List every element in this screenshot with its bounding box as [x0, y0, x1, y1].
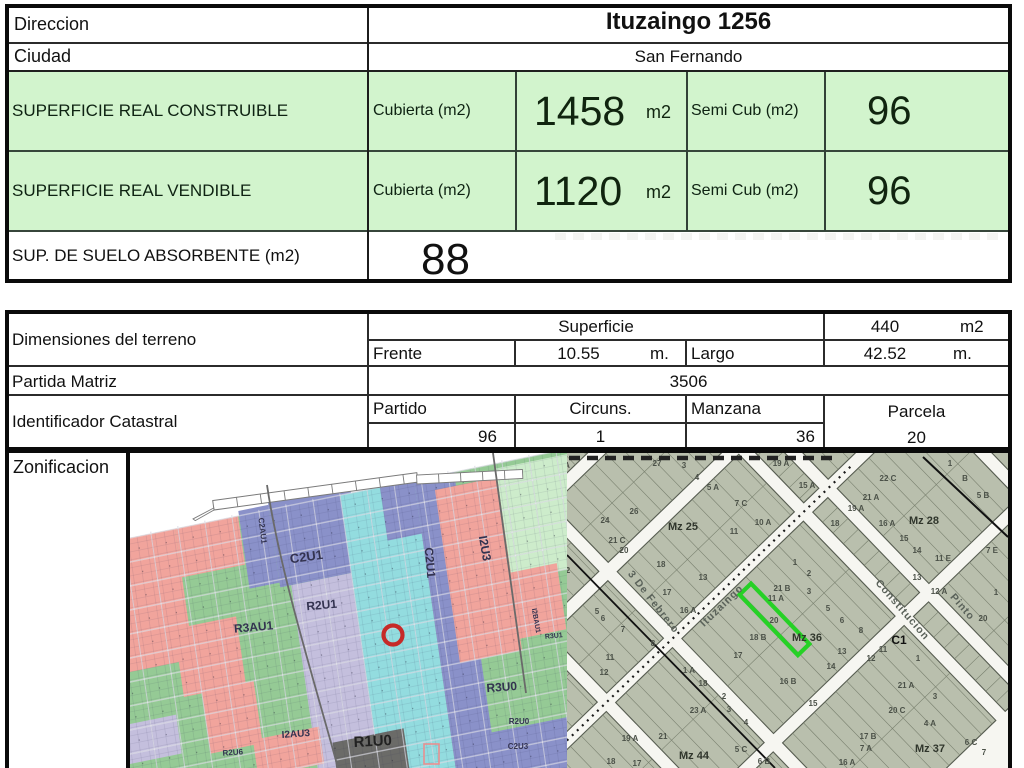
- svg-text:4: 4: [744, 718, 749, 727]
- svg-text:21 A: 21 A: [898, 681, 915, 690]
- svg-text:1: 1: [948, 459, 953, 468]
- svg-text:A: A: [567, 461, 570, 470]
- svg-text:6 C: 6 C: [965, 738, 978, 747]
- svg-text:2: 2: [722, 692, 727, 701]
- svg-text:20: 20: [770, 616, 779, 625]
- svg-text:Mz 25: Mz 25: [668, 521, 698, 533]
- svg-text:18: 18: [831, 519, 840, 528]
- svg-text:R3U0: R3U0: [486, 679, 518, 695]
- svg-text:21: 21: [659, 732, 668, 741]
- svg-text:20 C: 20 C: [889, 706, 906, 715]
- svg-text:7 A: 7 A: [860, 744, 872, 753]
- svg-text:Mz 37: Mz 37: [915, 743, 945, 755]
- svg-text:16 B: 16 B: [780, 677, 797, 686]
- svg-text:R2U6: R2U6: [222, 747, 244, 757]
- svg-text:6: 6: [840, 616, 845, 625]
- svg-text:12: 12: [867, 654, 876, 663]
- svg-text:19 A: 19 A: [773, 459, 790, 468]
- svg-text:10 A: 10 A: [755, 518, 772, 527]
- svg-text:13: 13: [913, 573, 922, 582]
- svg-text:15 A: 15 A: [799, 481, 816, 490]
- svg-text:Mz 28: Mz 28: [909, 515, 939, 527]
- svg-text:15: 15: [809, 699, 818, 708]
- svg-text:3: 3: [807, 587, 812, 596]
- svg-text:19 A: 19 A: [622, 734, 639, 743]
- svg-text:I2AU3: I2AU3: [281, 728, 310, 741]
- svg-text:18 B: 18 B: [750, 633, 767, 642]
- svg-text:17 B: 17 B: [860, 732, 877, 741]
- svg-text:C1: C1: [891, 633, 907, 647]
- svg-text:13: 13: [838, 647, 847, 656]
- svg-text:16 A: 16 A: [839, 758, 856, 767]
- svg-text:18: 18: [699, 679, 708, 688]
- svg-text:26: 26: [630, 507, 639, 516]
- svg-text:7: 7: [621, 625, 626, 634]
- svg-text:23 A: 23 A: [690, 706, 707, 715]
- svg-text:5: 5: [826, 604, 831, 613]
- svg-text:11: 11: [879, 645, 888, 654]
- svg-text:11: 11: [606, 653, 615, 662]
- svg-text:13: 13: [699, 573, 708, 582]
- svg-text:17: 17: [663, 588, 672, 597]
- svg-text:5 A: 5 A: [707, 483, 719, 492]
- svg-text:18: 18: [607, 757, 616, 766]
- svg-text:11 A: 11 A: [768, 594, 784, 603]
- svg-text:27: 27: [653, 459, 662, 468]
- svg-text:1: 1: [916, 654, 921, 663]
- svg-text:R2U0: R2U0: [509, 717, 530, 726]
- svg-text:14: 14: [827, 662, 836, 671]
- svg-text:C2U1: C2U1: [422, 547, 439, 579]
- svg-text:8: 8: [859, 626, 864, 635]
- svg-text:6: 6: [601, 614, 606, 623]
- svg-text:14: 14: [913, 546, 922, 555]
- svg-text:22 C: 22 C: [880, 474, 897, 483]
- svg-text:7 C: 7 C: [735, 499, 748, 508]
- svg-text:1: 1: [793, 558, 798, 567]
- svg-text:C2U3: C2U3: [508, 742, 529, 751]
- svg-text:3: 3: [682, 461, 687, 470]
- svg-text:4 A: 4 A: [924, 719, 936, 728]
- svg-text:2: 2: [567, 566, 571, 575]
- svg-text:16 A: 16 A: [879, 519, 896, 528]
- svg-text:2: 2: [807, 569, 812, 578]
- svg-text:1 A: 1 A: [683, 666, 695, 675]
- svg-text:11 E: 11 E: [935, 554, 952, 563]
- svg-text:B: B: [962, 474, 968, 483]
- svg-text:7: 7: [982, 748, 987, 757]
- svg-text:5 C: 5 C: [735, 745, 748, 754]
- svg-text:1: 1: [994, 588, 999, 597]
- svg-text:3: 3: [727, 705, 732, 714]
- svg-text:12 A: 12 A: [931, 587, 948, 596]
- svg-text:3: 3: [933, 692, 938, 701]
- svg-text:12: 12: [600, 668, 609, 677]
- svg-text:R1U0: R1U0: [353, 732, 392, 751]
- svg-text:11: 11: [730, 527, 739, 536]
- svg-text:5: 5: [595, 607, 600, 616]
- svg-text:R2U1: R2U1: [306, 597, 338, 614]
- svg-text:Mz 36: Mz 36: [792, 632, 822, 644]
- svg-text:21 C: 21 C: [609, 536, 626, 545]
- svg-text:20: 20: [620, 546, 629, 555]
- svg-text:7 E: 7 E: [986, 546, 999, 555]
- svg-text:20: 20: [979, 614, 988, 623]
- svg-text:Mz 44: Mz 44: [679, 750, 710, 762]
- svg-text:6 B: 6 B: [758, 757, 771, 766]
- svg-text:17: 17: [633, 759, 642, 768]
- svg-text:17: 17: [734, 651, 743, 660]
- svg-text:16 A: 16 A: [680, 606, 697, 615]
- svg-text:4: 4: [695, 473, 700, 482]
- svg-text:8: 8: [651, 639, 656, 648]
- svg-text:15: 15: [900, 534, 909, 543]
- svg-text:24: 24: [601, 516, 610, 525]
- svg-text:19 A: 19 A: [848, 504, 865, 513]
- svg-text:5 B: 5 B: [977, 491, 990, 500]
- svg-text:21 B: 21 B: [774, 584, 791, 593]
- svg-text:18: 18: [657, 560, 666, 569]
- svg-text:21 A: 21 A: [863, 493, 880, 502]
